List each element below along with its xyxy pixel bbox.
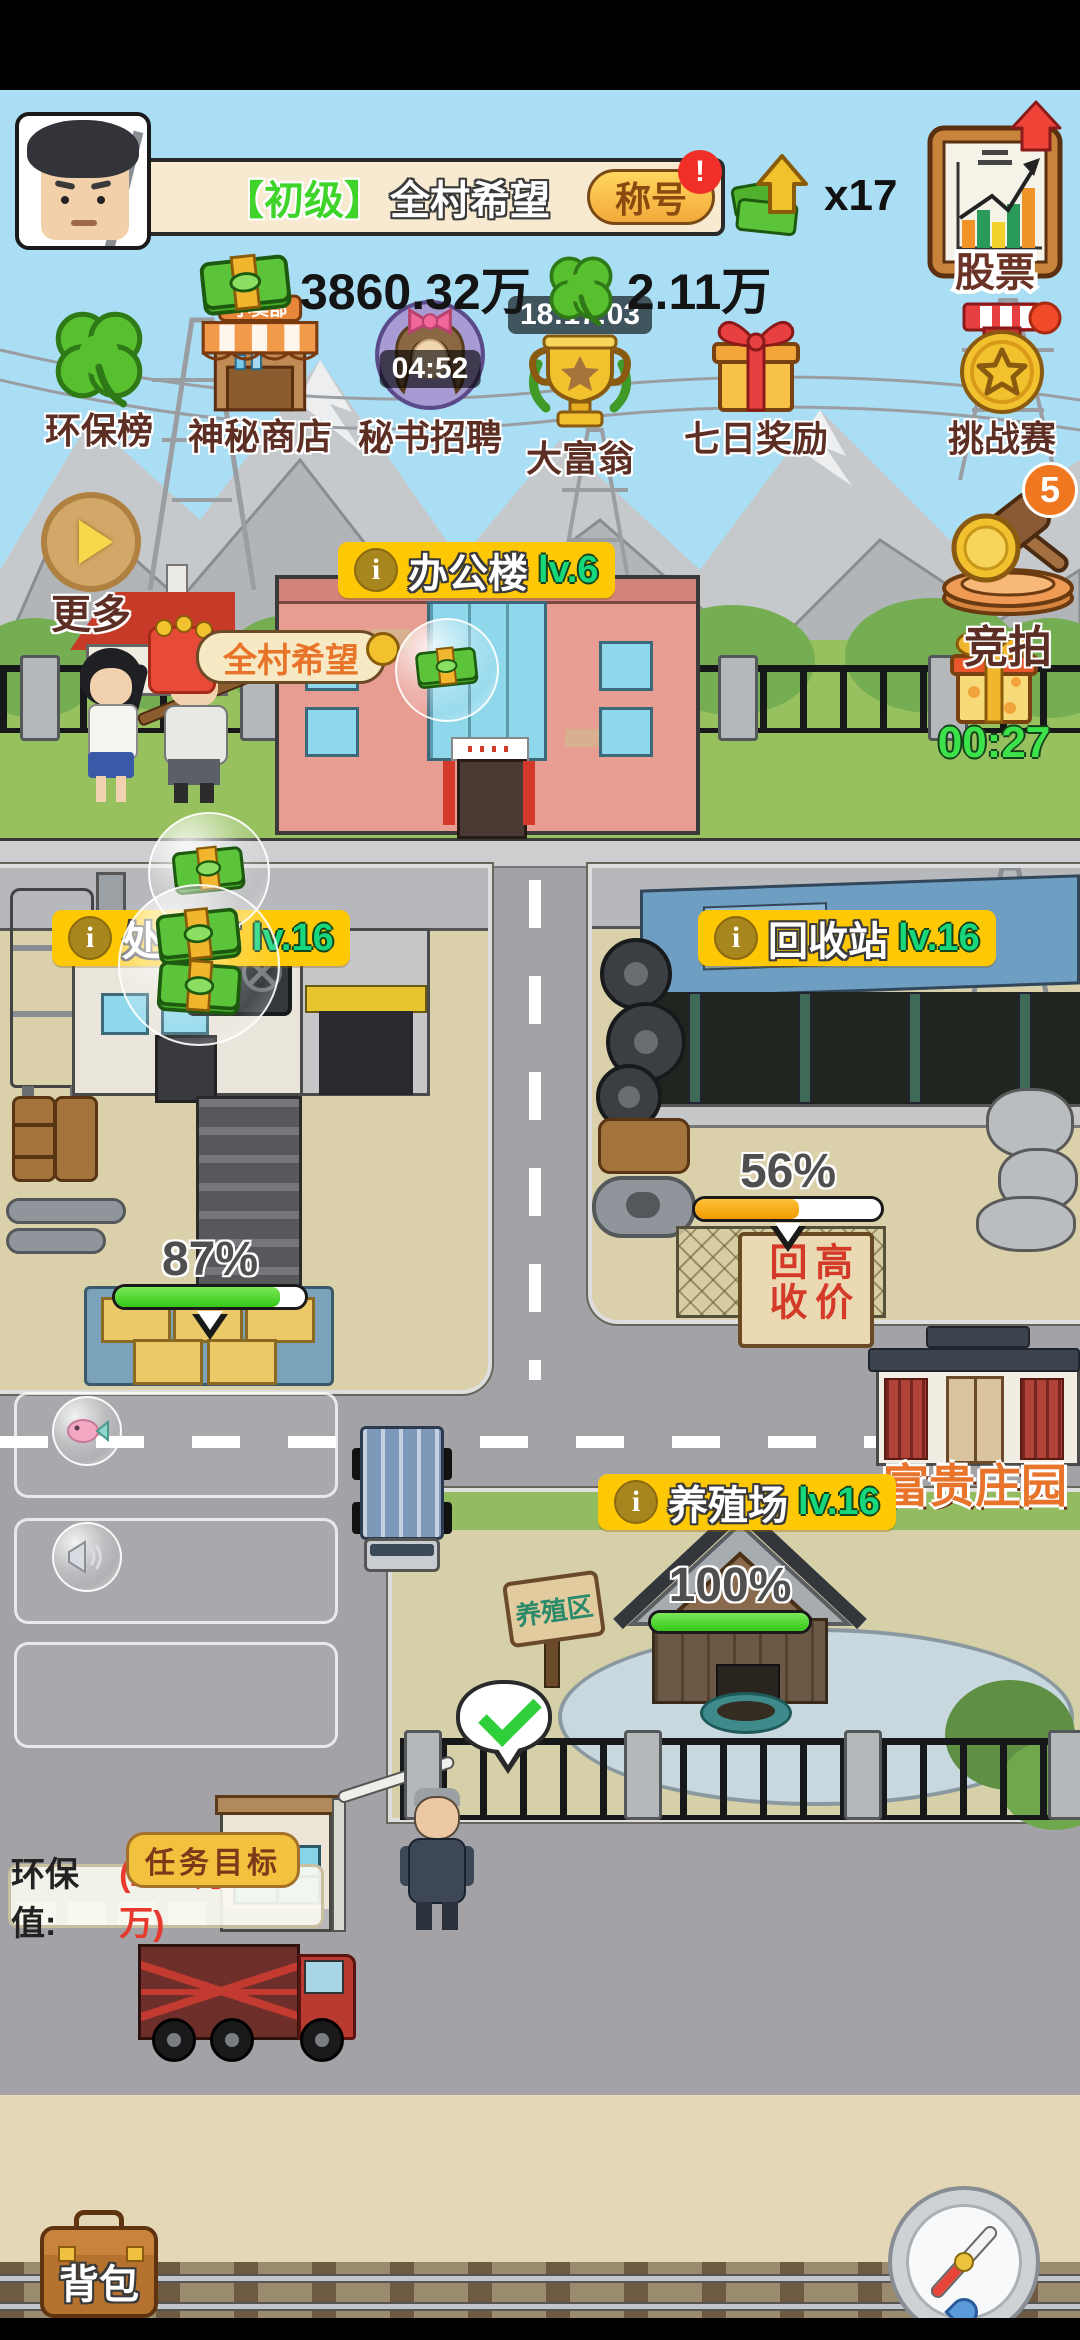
task-check-bubble[interactable] [456,1680,556,1784]
office-door [457,759,527,839]
auction-button[interactable]: 5 竞拍 [934,452,1080,671]
office-window [599,641,653,691]
game-screen: 全村希望 i 办公楼 lv.6 [0,0,1080,2340]
speaker-icon [67,1540,107,1574]
plant-progress-fill [115,1287,280,1307]
plant-progress-bar [112,1284,308,1310]
info-icon: i [68,916,112,960]
recycle-progress: 56% [692,1148,884,1242]
env-label: 环保值: [11,1847,119,1945]
village-hope-text: 全村希望 [223,633,359,682]
office-level: lv.6 [538,549,599,592]
office-label[interactable]: i 办公楼 lv.6 [338,542,615,598]
status-bar-top [0,0,1080,90]
money-bubble[interactable] [395,618,499,722]
recycle-progress-bar [692,1196,884,1222]
info-icon: i [354,548,398,592]
auction-badge: 5 [1022,462,1078,518]
secretary-timer: 04:52 [380,350,481,388]
backpack-button[interactable]: 背包 [40,2226,158,2318]
player-name: 全村希望 [390,168,550,226]
booster-bubble-fish[interactable] [52,1396,122,1466]
money-icon [414,644,480,696]
money-value: 3860.32万 [300,252,531,324]
trophy-icon [520,328,640,438]
plant-progress: 87% [112,1236,308,1330]
money-bubble[interactable] [118,884,280,1046]
farm-level: lv.16 [798,1481,880,1524]
barrier-pole [332,1798,346,1932]
office-door-sign [451,737,529,761]
farm-progress-bar [648,1610,812,1634]
feed-bowl [700,1692,792,1734]
brick-patch [565,729,599,747]
farm-sign-text: 养殖区 [513,1585,595,1632]
title-button[interactable]: 称号 ! [587,169,715,225]
barrel-lying [598,1118,690,1174]
money-counter: 3860.32万 2.11万 [198,248,771,328]
svg-text:股票: 股票 [955,251,1035,294]
feature-challenge[interactable]: 挑战赛 [924,298,1080,458]
player-plate[interactable]: 【初级】 全村希望 称号 ! [140,158,725,236]
fence-pillar [1048,1730,1080,1820]
office-window [305,707,359,757]
play-icon [41,492,141,592]
nav-bar-bottom [0,2318,1080,2340]
girl-character [76,648,146,808]
farm-progress: 100% [648,1562,812,1634]
barrel [54,1096,98,1182]
medal-icon [942,298,1062,418]
money-icon [198,250,294,326]
road-dash-vertical [529,880,541,1380]
pipes [6,1228,106,1254]
boost-item[interactable]: x17 [730,150,897,242]
info-icon: i [714,916,758,960]
fence-pillar [20,655,60,741]
farm-name: 养殖场 [668,1473,788,1531]
recycle-label[interactable]: i 回收站 lv.16 [698,910,996,966]
gift-timer: 00:27 [938,718,1051,768]
avatar[interactable] [15,112,151,250]
compass[interactable] [888,2186,1046,2340]
boost-icon [730,150,816,242]
backpack-label: 背包 [59,2263,139,2307]
more-button[interactable]: 更多 [36,492,146,636]
blue-truck [352,1426,452,1576]
pipes [6,1198,126,1224]
fence-pillar [624,1730,662,1820]
task-tag: 任务目标 [126,1832,300,1888]
booster-slot-3[interactable] [14,1642,338,1748]
info-icon: i [614,1480,658,1524]
boost-count: x17 [824,171,897,221]
recycle-interior [648,992,1080,1104]
barrel [12,1096,56,1182]
feature-seven-day[interactable]: 七日奖励 [676,306,836,458]
recycle-sign-text: 高价回收 [760,1242,851,1338]
old-man-character [398,1786,476,1932]
farm-label[interactable]: i 养殖场 lv.16 [598,1474,896,1530]
sack [976,1196,1076,1252]
stock-button[interactable]: 股票 [920,98,1070,299]
clover-icon [44,300,154,410]
farm-progress-fill [651,1613,809,1631]
alert-badge: ! [678,150,722,194]
fence-pillar [718,655,758,741]
player-grade: 【初级】 [224,168,384,226]
red-truck [138,1944,358,2066]
clover-value: 2.11万 [627,252,772,324]
office-window [599,707,653,757]
recycle-sign: 高价回收 [738,1232,874,1348]
clover-icon [541,248,621,328]
booster-bubble-speaker[interactable] [52,1522,122,1592]
feature-env-rank[interactable]: 环保榜 [24,300,174,450]
door-couplet [443,761,455,825]
stock-icon: 股票 [920,98,1070,294]
fence-pillar [844,1730,882,1820]
recycle-name: 回收站 [768,909,888,967]
office-name: 办公楼 [408,541,528,599]
recycle-progress-fill [695,1199,799,1219]
fish-icon [65,1415,109,1447]
office-building[interactable] [275,575,700,835]
recycle-level: lv.16 [898,917,980,960]
manor-label: 富贵庄园 [872,1450,1078,1516]
door-couplet [523,761,535,825]
tire [600,938,672,1010]
